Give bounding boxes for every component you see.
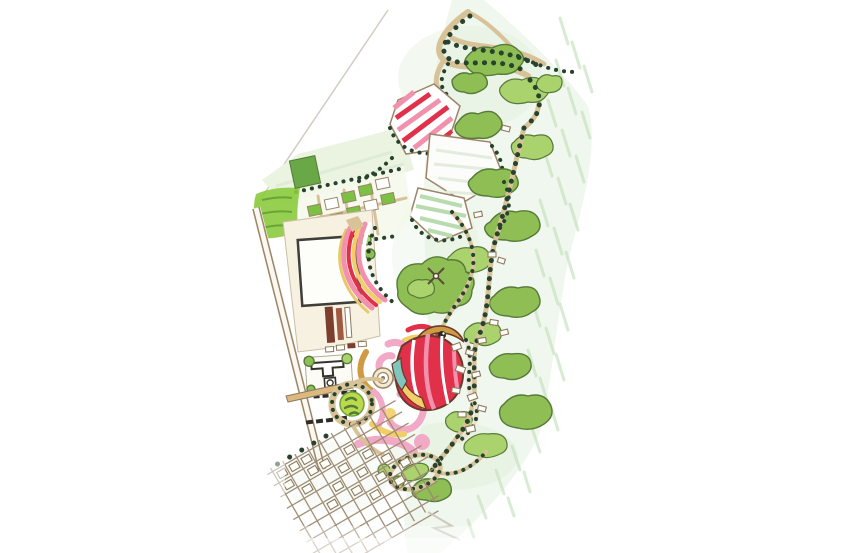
site-plan-canvas — [0, 0, 856, 553]
garden-plot-cell — [358, 184, 373, 196]
village-house — [452, 387, 461, 393]
garden-plot-cell — [307, 204, 322, 216]
village-house — [474, 211, 483, 218]
windmill-hub — [434, 274, 439, 279]
terrace-row — [336, 345, 344, 351]
bench-block — [326, 418, 333, 423]
village-house — [478, 337, 487, 343]
village-house — [458, 412, 466, 417]
terrace-row — [325, 347, 333, 353]
garden-plot-cell — [324, 197, 339, 209]
village-house — [490, 319, 499, 325]
bench-block — [316, 419, 323, 424]
garden-plot-cell — [375, 177, 390, 189]
shrub-mass — [500, 395, 553, 429]
village-house — [488, 252, 496, 257]
tree-cluster — [304, 356, 315, 367]
terrace-row — [347, 343, 355, 349]
village-house — [465, 425, 475, 433]
dome-finial-highlight — [442, 332, 444, 334]
fade-strip — [250, 538, 570, 553]
tree-cluster — [342, 353, 353, 364]
terrace-row — [358, 341, 366, 347]
fade-strip — [255, 430, 285, 553]
shrub-mass — [489, 354, 531, 380]
pink-bed — [414, 434, 430, 450]
garden-plot-cell — [381, 193, 396, 205]
dark-hedge — [289, 156, 320, 189]
shrub-mass — [452, 73, 487, 94]
shrub-mass — [536, 75, 562, 93]
site-plan-page — [0, 0, 856, 553]
garden-plot-cell — [341, 191, 356, 203]
street-tree — [323, 433, 330, 440]
